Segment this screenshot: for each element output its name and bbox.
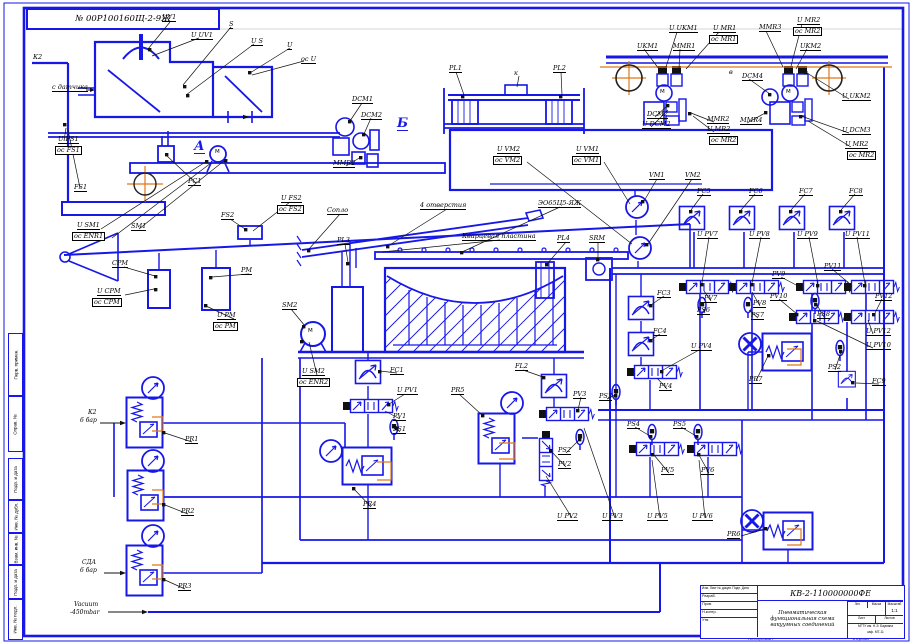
diagram-label: ос VM1 xyxy=(572,156,601,165)
diagram-label: FS1 xyxy=(74,184,87,192)
diagram-label: PS1 xyxy=(393,426,406,434)
diagram-label: PV12 xyxy=(875,293,892,301)
diagram-label: PV6 xyxy=(701,467,714,475)
diagram-label: PR2 xyxy=(181,508,194,516)
diagram-label: к xyxy=(514,70,518,77)
diagram-label: PC1 xyxy=(188,178,201,186)
diagram-label: ос ENR2 xyxy=(297,378,330,387)
diagram-label: PV3 xyxy=(573,391,586,399)
diagram-label: PS2 xyxy=(828,364,841,372)
diagram-labels: UV1U UV1SU SUос UК2с датчикаU FS1ос FS1F… xyxy=(0,0,913,644)
diagram-label: U MR2 xyxy=(707,126,730,134)
diagram-label: ос FS2 xyxy=(277,205,304,214)
diagram-label: PR5 xyxy=(451,387,464,395)
diagram-label: U PV3 xyxy=(602,513,623,521)
diagram-label: U PV2 xyxy=(557,513,578,521)
diagram-label: 6 бар xyxy=(80,418,97,424)
diagram-label: ЭО65Ц5-ЯЖ xyxy=(538,200,581,208)
diagram-label: VM2 xyxy=(685,172,701,180)
title-row: Н.контр. xyxy=(701,610,757,618)
diagram-label: ос CPM xyxy=(92,298,122,307)
diagram-label: FL2 xyxy=(515,363,528,371)
diagram-label: DCM1 xyxy=(352,96,373,104)
diagram-label: PV9 xyxy=(772,271,785,279)
diagram-label: U SM1 xyxy=(77,222,100,230)
diagram-label: PV10 xyxy=(770,293,787,301)
title-org-line: МГТУ им. Н.Э. Баумана xyxy=(847,623,903,630)
title-row: Пров. xyxy=(701,602,757,610)
diagram-label: PL3 xyxy=(337,237,350,245)
diagram-label: CPM xyxy=(112,260,128,268)
diagram-label: U PV12 xyxy=(866,328,891,336)
title-block: КВ-2-110000000ФЕ Изм. Лист № докум. Подп… xyxy=(700,585,905,639)
title-header-row: Изм. Лист № докум. Подп. Дата xyxy=(701,586,757,594)
diagram-label: PL1 xyxy=(449,65,462,73)
diagram-label: М xyxy=(215,150,220,156)
diagram-label: MMR3 xyxy=(759,24,781,32)
title-doc-number: КВ-2-110000000ФЕ xyxy=(757,586,903,601)
diagram-label: FC5 xyxy=(697,188,711,196)
diagram-label: U DCM3 xyxy=(842,127,871,135)
diagram-label: М xyxy=(660,90,665,96)
diagram-label: FC3 xyxy=(657,290,671,298)
title-row: Разраб. xyxy=(701,594,757,602)
diagram-label: U PV5 xyxy=(647,513,668,521)
diagram-label: К2 xyxy=(33,54,42,61)
diagram-label: ос U xyxy=(301,56,316,64)
diagram-label: DCM4 xyxy=(742,73,763,81)
diagram-label: PR6 xyxy=(727,531,740,539)
diagram-label: U SM2 xyxy=(302,368,325,376)
diagram-label: U UKM2 xyxy=(842,93,871,101)
diagram-label: MMR4 xyxy=(740,117,762,125)
diagram-label: U MR2 xyxy=(845,141,868,149)
diagram-label: U PV1 xyxy=(397,387,418,395)
diagram-label: ос FS1 xyxy=(55,146,82,155)
title-sheet-cell: Лист xyxy=(847,616,875,623)
diagram-label: PR7 xyxy=(749,376,762,384)
diagram-label: PV8 xyxy=(753,300,766,308)
diagram-label: PV7 xyxy=(704,295,717,303)
diagram-label: PS2 xyxy=(558,447,571,455)
diagram-label: U PV11 xyxy=(845,231,870,239)
diagram-label: FC9 xyxy=(872,378,886,386)
diagram-label: PS4 xyxy=(627,421,640,429)
diagram-label: U DCM2 xyxy=(642,121,671,129)
diagram-label: М xyxy=(308,329,313,335)
diagram-label: М xyxy=(786,90,791,96)
diagram-label: FC8 xyxy=(849,188,863,196)
diagram-label: U UKM1 xyxy=(669,25,698,33)
title-org-line: каф. МТ-11 xyxy=(847,630,903,638)
title-row: Утв. xyxy=(701,618,757,626)
diagram-label: PS5 xyxy=(673,421,686,429)
diagram-label: ос MR2 xyxy=(793,27,822,36)
diagram-label: PV11 xyxy=(824,263,841,271)
diagram-label: FC4 xyxy=(653,328,667,336)
diagram-label: U PV9 xyxy=(797,231,818,239)
title-sheets-cell: Листов xyxy=(875,616,903,623)
diagram-label: U PV7 xyxy=(697,231,718,239)
diagram-label: U PV4 xyxy=(691,343,712,351)
diagram-label: FC7 xyxy=(799,188,813,196)
diagram-label: К2 xyxy=(88,410,96,416)
diagram-label: PV1 xyxy=(393,413,406,421)
title-mass-cell: Масса xyxy=(867,601,885,608)
diagram-label: U VM1 xyxy=(576,146,599,154)
diagram-label: U VM2 xyxy=(497,146,520,154)
diagram-label: FS2 xyxy=(221,212,234,220)
diagram-label: СДА xyxy=(82,560,96,566)
diagram-label: ос MR1 xyxy=(709,35,738,44)
diagram-label: DCM2 xyxy=(647,111,668,119)
diagram-label: PV4 xyxy=(659,383,672,391)
diagram-label: PR3 xyxy=(178,583,191,591)
diagram-label: U PM xyxy=(217,312,236,320)
diagram-label: А xyxy=(194,140,205,154)
diagram-label: PR1 xyxy=(185,436,198,444)
diagram-label: S xyxy=(229,21,233,29)
diagram-label: PV5 xyxy=(661,467,674,475)
diagram-label: PV2 xyxy=(558,461,571,469)
diagram-label: UV1 xyxy=(162,14,176,22)
diagram-label: SM1 xyxy=(131,223,146,231)
title-scale-cell: Масштаб xyxy=(885,601,903,608)
diagram-label: U CPM xyxy=(97,288,121,296)
diagram-label: MMR1 xyxy=(673,43,695,51)
diagram-label: U PV6 xyxy=(692,513,713,521)
diagram-label: U FS1 xyxy=(58,136,79,144)
diagram-label: U UV1 xyxy=(191,32,213,40)
diagram-label: MMR2 xyxy=(333,160,355,168)
diagram-label: ос PM xyxy=(213,322,238,331)
diagram-label: UKM1 xyxy=(637,43,658,51)
diagram-label: Vacuum xyxy=(74,602,98,608)
title-description: Пневматическаяфункциональная схемавакуум… xyxy=(757,601,847,637)
diagram-label: U PV10 xyxy=(866,342,891,350)
diagram-label: PR4 xyxy=(363,501,376,509)
title-lit-cell: Лит. xyxy=(847,601,867,608)
diagram-label: PS3 xyxy=(599,393,612,401)
diagram-label: -450mbar xyxy=(70,610,99,616)
diagram-label: ос MR2 xyxy=(709,136,738,145)
diagram-label: PS7 xyxy=(751,312,764,320)
diagram-label: 4 отверстия xyxy=(420,202,466,210)
diagram-label: U MR1 xyxy=(713,25,736,33)
diagram-label: SRM xyxy=(589,235,605,243)
diagram-label: U FS2 xyxy=(281,195,302,203)
diagram-label: VM1 xyxy=(649,172,665,180)
diagram-label: FC1 xyxy=(390,367,404,375)
diagram-label: PL2 xyxy=(553,65,566,73)
diagram-label: U MR2 xyxy=(797,17,820,25)
diagram-label: U xyxy=(287,42,292,50)
diagram-label: с датчика xyxy=(52,84,88,92)
diagram-label: ос VM2 xyxy=(493,156,522,165)
diagram-label: FC6 xyxy=(749,188,763,196)
diagram-label: PS8 xyxy=(817,311,830,319)
diagram-label: в xyxy=(729,69,733,76)
title-lit-value xyxy=(847,608,885,616)
diagram-label: ос MR2 xyxy=(847,151,876,160)
diagram-label: UKM2 xyxy=(800,43,821,51)
diagram-label: U S xyxy=(251,38,263,46)
diagram-label: Сопло xyxy=(327,207,348,215)
diagram-label: Кварцевая пластина xyxy=(462,233,536,241)
diagram-label: PM xyxy=(241,267,252,275)
diagram-label: PS6 xyxy=(697,307,710,315)
diagram-label: SM2 xyxy=(282,302,297,310)
diagram-label: Б xyxy=(397,117,408,131)
pneumatic-schematic-canvas: № 00Р100160Щ-2-9Ж Перв. примен. Справ. №… xyxy=(0,0,913,644)
diagram-label: PL4 xyxy=(557,235,570,243)
diagram-label: DCM2 xyxy=(361,112,382,120)
diagram-label: U PV8 xyxy=(749,231,770,239)
diagram-label: MMR2 xyxy=(707,116,729,124)
title-scale-value: 1:1 xyxy=(885,608,903,616)
diagram-label: 6 бар xyxy=(80,568,97,574)
diagram-label: ос ENR1 xyxy=(72,232,105,241)
